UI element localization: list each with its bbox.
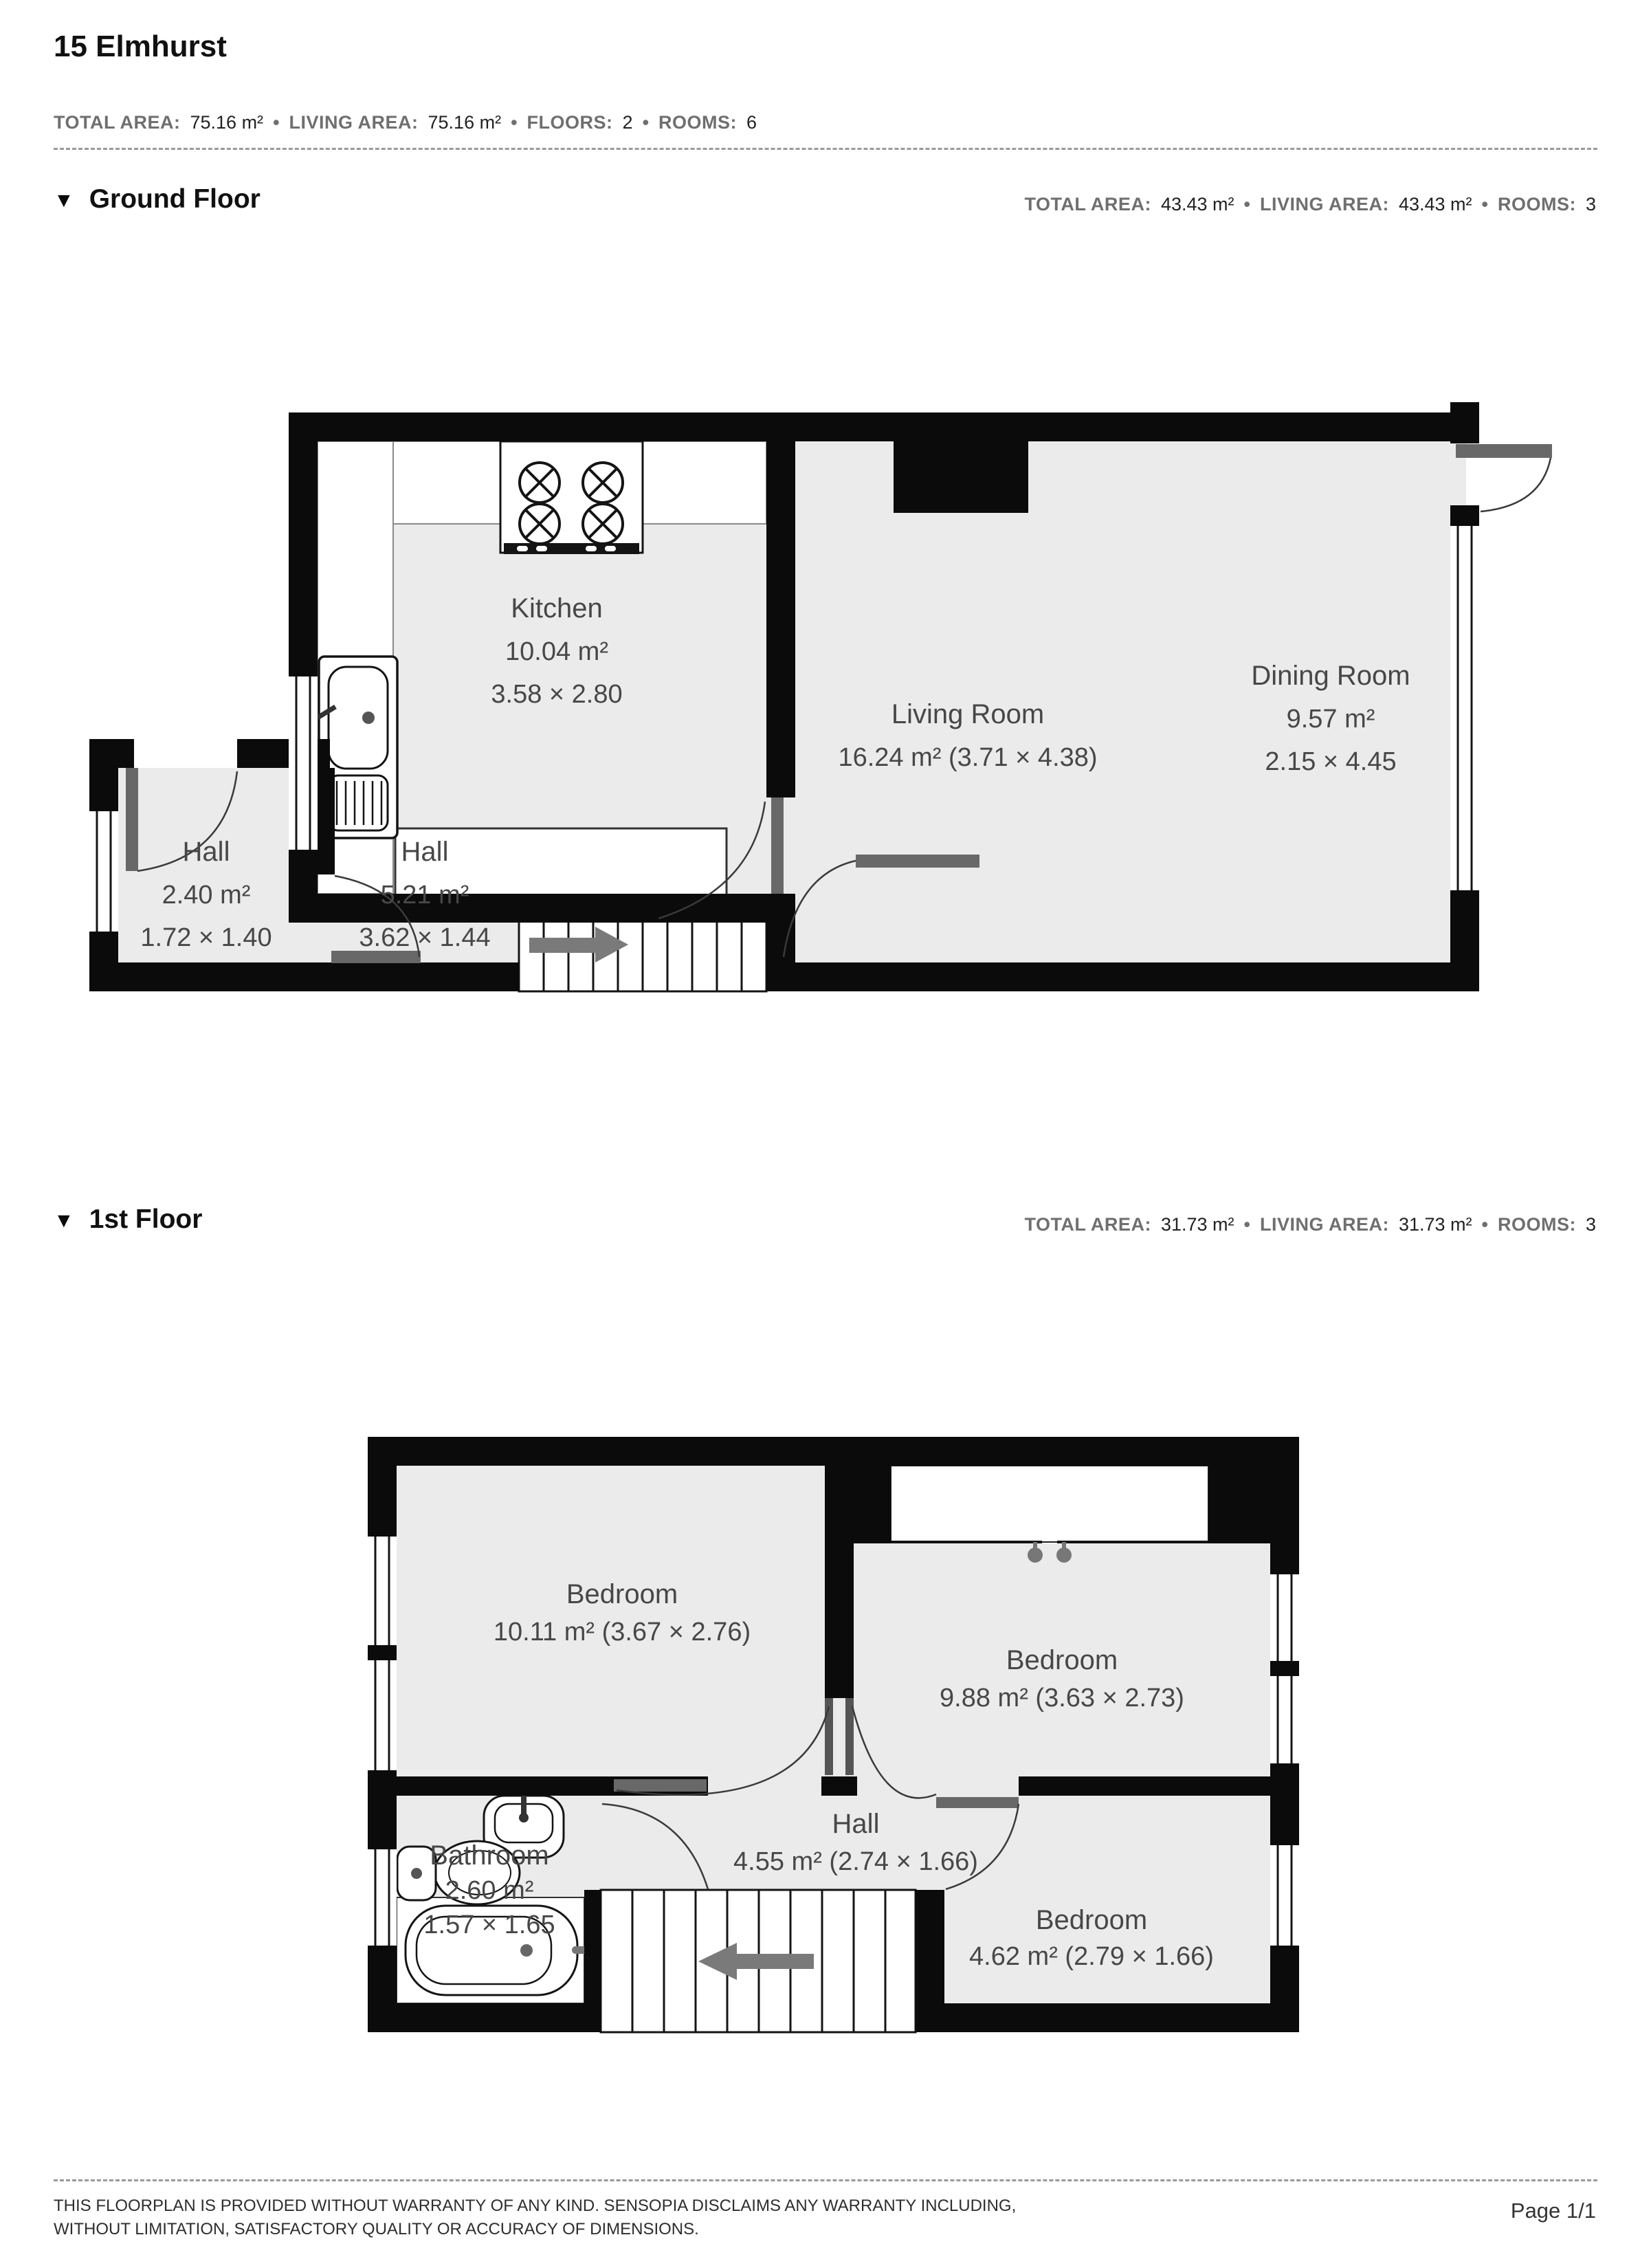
- window-bedroom-left: [368, 1537, 397, 1770]
- disclaimer: THIS FLOORPLAN IS PROVIDED WITHOUT WARRA…: [54, 2194, 1016, 2241]
- room-area: 10.04 m²: [505, 637, 608, 666]
- room-label: Hall: [401, 837, 449, 867]
- window-hall-left: [89, 811, 118, 932]
- first-floor-stats: TOTAL AREA: 31.73 m² • LIVING AREA: 31.7…: [1024, 1214, 1596, 1235]
- room-area: 10.11 m² (3.67 × 2.76): [494, 1618, 751, 1647]
- room-area: 2.60 m²: [445, 1876, 534, 1905]
- separator-line: [54, 2179, 1597, 2181]
- stat-separator: •: [643, 112, 649, 133]
- room-area: 16.24 m² (3.71 × 4.38): [838, 743, 1097, 772]
- bedroom-left-door-leaf: [614, 1779, 707, 1792]
- room-area: 4.62 m² (2.79 × 1.66): [969, 1942, 1214, 1971]
- ground-floor-header: ▼ Ground Floor: [54, 184, 261, 214]
- stove-icon: [500, 441, 643, 554]
- bedroom-small-door-leaf: [936, 1797, 1019, 1808]
- floor-marker-icon: ▼: [54, 1209, 74, 1233]
- ground-floor-plan: Kitchen 10.04 m² 3.58 × 2.80 Living Room…: [0, 385, 1651, 1017]
- page-title: 15 Elmhurst: [54, 30, 227, 64]
- stat-label: TOTAL AREA:: [54, 112, 181, 133]
- room-area: 2.40 m²: [162, 881, 251, 910]
- room-area: 9.57 m²: [1287, 705, 1375, 734]
- room-label: Bedroom: [1006, 1645, 1118, 1675]
- room-label: Hall: [183, 837, 230, 867]
- room-label: Bedroom: [566, 1579, 678, 1609]
- floor-title: 1st Floor: [89, 1204, 203, 1235]
- stat-label: TOTAL AREA:: [1024, 1214, 1151, 1235]
- room-label: Kitchen: [511, 593, 602, 624]
- first-floor-plan: Bedroom 10.11 m² (3.67 × 2.76) Bedroom 9…: [0, 1409, 1651, 2056]
- stat-value: 43.43 m²: [1161, 194, 1234, 215]
- staircase-down: [601, 1890, 916, 2032]
- hall-door-leaf: [331, 951, 421, 963]
- stat-value: 6: [746, 112, 757, 133]
- stat-value: 3: [1586, 1214, 1596, 1235]
- disclaimer-line: WITHOUT LIMITATION, SATISFACTORY QUALITY…: [54, 2218, 1016, 2241]
- stat-label: ROOMS:: [658, 112, 737, 133]
- stat-separator: •: [1244, 194, 1250, 215]
- kitchen-door-leaf: [771, 797, 784, 894]
- stat-value: 31.73 m²: [1399, 1214, 1472, 1235]
- stat-value: 43.43 m²: [1399, 194, 1472, 215]
- stat-value: 75.16 m²: [428, 112, 502, 133]
- floorplan-page: 15 Elmhurst TOTAL AREA: 75.16 m² • LIVIN…: [0, 0, 1651, 2268]
- stat-value: 2: [623, 112, 633, 133]
- window-bedroom-right: [1270, 1574, 1299, 1763]
- room-label: Bathroom: [430, 1840, 549, 1871]
- property-stats: TOTAL AREA: 75.16 m² • LIVING AREA: 75.1…: [54, 112, 757, 133]
- stat-label: ROOMS:: [1498, 1214, 1576, 1235]
- page-number: Page 1/1: [1511, 2199, 1596, 2223]
- stat-separator: •: [1244, 1214, 1250, 1235]
- room-dims: 1.57 × 1.65: [423, 1911, 555, 1939]
- stat-label: LIVING AREA:: [1260, 1214, 1389, 1235]
- stat-label: TOTAL AREA:: [1024, 194, 1151, 215]
- stat-label: FLOORS:: [527, 112, 613, 133]
- room-label: Living Room: [891, 699, 1044, 729]
- back-door-leaf: [1456, 444, 1552, 458]
- room-dims: 3.58 × 2.80: [491, 680, 622, 709]
- stat-label: LIVING AREA:: [289, 112, 419, 133]
- window-bedroom-small-right: [1270, 1845, 1299, 1946]
- room-label: Bedroom: [1036, 1905, 1147, 1935]
- floor-title: Ground Floor: [89, 184, 261, 214]
- stat-separator: •: [1482, 194, 1488, 215]
- disclaimer-line: THIS FLOORPLAN IS PROVIDED WITHOUT WARRA…: [54, 2194, 1016, 2218]
- room-area: 5.21 m²: [381, 881, 469, 910]
- window-kitchen-left: [289, 676, 318, 850]
- room-label: Hall: [832, 1809, 880, 1839]
- stat-separator: •: [273, 112, 279, 133]
- stat-label: ROOMS:: [1498, 194, 1576, 215]
- stat-value: 3: [1586, 194, 1596, 215]
- window-bathroom-left: [368, 1849, 397, 1946]
- separator-line: [54, 148, 1597, 150]
- stat-value: 31.73 m²: [1161, 1214, 1234, 1235]
- floor-marker-icon: ▼: [54, 189, 74, 212]
- ground-floor-stats: TOTAL AREA: 43.43 m² • LIVING AREA: 43.4…: [1024, 194, 1596, 215]
- window-dining-right: [1450, 526, 1479, 890]
- stat-separator: •: [1482, 1214, 1488, 1235]
- room-dims: 2.15 × 4.45: [1265, 747, 1396, 776]
- stat-label: LIVING AREA:: [1260, 194, 1389, 215]
- room-area: 9.88 m² (3.63 × 2.73): [940, 1684, 1184, 1713]
- room-dims: 1.72 × 1.40: [140, 923, 272, 952]
- room-dims: 3.62 × 1.44: [359, 923, 490, 952]
- front-door-leaf: [126, 768, 138, 871]
- stat-separator: •: [511, 112, 517, 133]
- room-label: Dining Room: [1251, 661, 1410, 691]
- room-area: 4.55 m² (2.74 × 1.66): [733, 1847, 978, 1876]
- stat-value: 75.16 m²: [190, 112, 264, 133]
- living-door-leaf: [856, 855, 979, 868]
- first-floor-header: ▼ 1st Floor: [54, 1204, 202, 1235]
